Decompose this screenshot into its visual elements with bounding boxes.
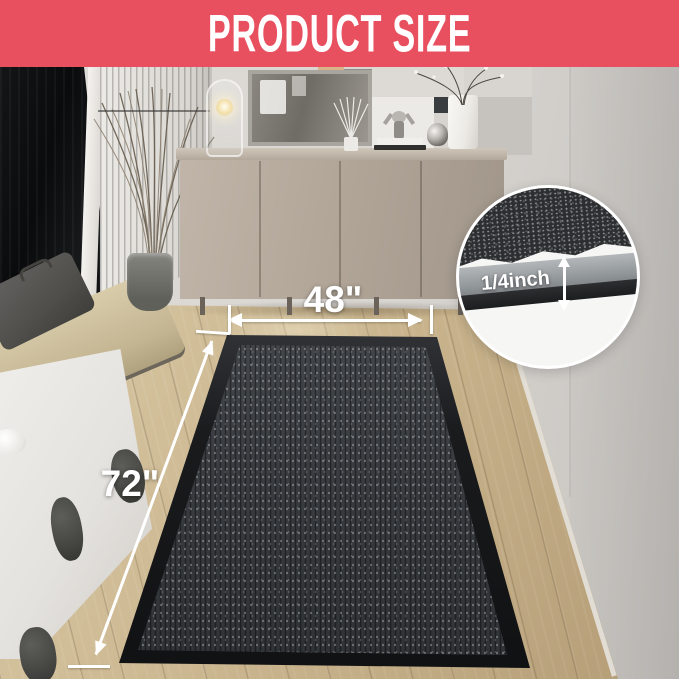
width-dimension-label: 48" — [283, 281, 383, 318]
banner: PRODUCT SIZE — [0, 0, 679, 67]
lamp-bulb — [216, 99, 233, 116]
width-end-tick — [228, 305, 231, 334]
dome-lamp — [206, 79, 243, 157]
room-photo: 48" 72" 1/4inch — [0, 67, 679, 679]
arrow-right-icon — [408, 313, 423, 327]
width-end-tick — [430, 305, 433, 334]
banner-title: PRODUCT SIZE — [208, 7, 471, 60]
mirror-reflection — [292, 76, 306, 96]
plant-pot — [127, 253, 173, 311]
product-size-image: PRODUCT SIZE — [0, 0, 679, 679]
length-end-tick — [68, 665, 110, 668]
width-arrow-icon — [239, 319, 421, 322]
vase-branches — [398, 67, 510, 105]
cabinet-door-seam — [420, 161, 422, 297]
diffuser-cup — [344, 137, 358, 151]
arrow-down-icon — [558, 300, 570, 311]
mirror-reflection — [260, 80, 286, 114]
cabinet-door-seam — [259, 161, 261, 297]
figurine-body — [394, 121, 404, 139]
hanging-rod — [98, 110, 210, 112]
cabinet-leg — [200, 297, 205, 315]
reed-diffuser-sticks — [330, 95, 372, 141]
book-stack — [377, 138, 423, 145]
thickness-inset: 1/4inch — [456, 185, 640, 369]
book-stack — [374, 145, 426, 150]
thickness-arrow-icon — [563, 266, 566, 300]
cabinet-door-seam — [339, 161, 341, 297]
metal-ornament — [427, 123, 448, 146]
